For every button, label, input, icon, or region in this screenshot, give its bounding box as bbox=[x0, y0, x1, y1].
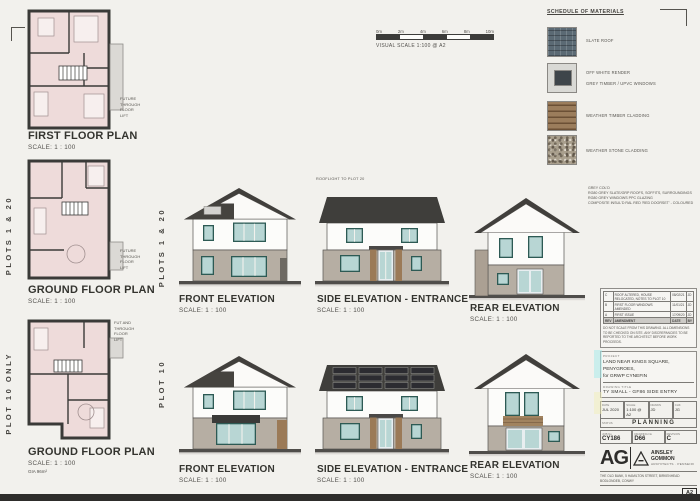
drawn-value: JD bbox=[651, 407, 671, 412]
meta-box: DATEJUL 2020 SCALE1:100 @ A2 DRAWNJD CHK… bbox=[600, 401, 697, 444]
elevation-title-side-row1: SIDE ELEVATION - ENTRANCE bbox=[317, 294, 468, 305]
material-label-slate: SLATE ROOF bbox=[586, 38, 696, 43]
plan-scale: SCALE: 1 : 100 bbox=[28, 460, 155, 467]
checked-value: JG bbox=[675, 407, 695, 412]
plan-note-lift: FUTURE THROUGH FLOOR LIFT bbox=[120, 96, 152, 118]
side-label-plot-10-plans: PLOT 10 ONLY bbox=[4, 352, 13, 435]
ainsley-gommon-logo-mark bbox=[633, 451, 649, 466]
status-label: STATUS bbox=[602, 421, 613, 425]
ainsley-gommon-logo: AG AINSLEY GOMMON ARCHITECTS · PENSEIRI bbox=[600, 447, 697, 469]
firm-address: THE OLD BANK, 5 HAMILTON STREET, BIRKENH… bbox=[600, 474, 697, 483]
side-label-plot-10-elevations: PLOT 10 bbox=[157, 360, 166, 408]
material-label-windows: GREY TIMBER / UPVC WINDOWS bbox=[586, 81, 696, 86]
elevation-title-front-row2: FRONT ELEVATION bbox=[179, 464, 275, 475]
elevation-scale: SCALE: 1 : 100 bbox=[470, 473, 560, 480]
side-label-plots-1-20-elevations: PLOTS 1 & 20 bbox=[157, 208, 166, 287]
plan-title-ground-floor-plot-10: GROUND FLOOR PLAN bbox=[28, 446, 155, 458]
scale-bar bbox=[376, 34, 494, 40]
elevation-scale: SCALE: 1 : 100 bbox=[317, 307, 468, 314]
status-value: PLANNING bbox=[613, 420, 695, 426]
rooflight-annotation: ROOFLIGHT TO PLOT 20 bbox=[316, 177, 364, 181]
plan-note-lift: FUTURE THROUGH FLOOR LIFT bbox=[120, 248, 152, 270]
plan-title-first-floor: FIRST FLOOR PLAN bbox=[28, 130, 138, 142]
revision-letter: C bbox=[667, 436, 695, 442]
drawing-title: TY SMALL - GF86 SIDE ENTRY bbox=[603, 390, 694, 395]
project-label: PROJECT bbox=[603, 354, 694, 358]
render-window-swatch bbox=[547, 63, 577, 93]
material-label-stone: WEATHER STONE CLADDING bbox=[586, 148, 696, 153]
firm-subtitle: ARCHITECTS · PENSEIRI bbox=[651, 462, 694, 466]
plan-scale: SCALE: 1 : 100 bbox=[28, 144, 138, 151]
elevation-title-side-row2: SIDE ELEVATION - ENTRANCE bbox=[317, 464, 468, 475]
drawing-title-label: DRAWING TITLE bbox=[603, 385, 694, 389]
plan-title-ground-floor-plots-1-20: GROUND FLOOR PLAN bbox=[28, 284, 155, 296]
elevation-scale: SCALE: 1 : 100 bbox=[317, 477, 468, 484]
title-block: CROOF ALTERED, HOUSE RELOCATED, NOTES TO… bbox=[600, 288, 697, 498]
side-elevation-entrance-plot-10-drawing bbox=[313, 352, 451, 458]
rear-elevation-plots-1-20-drawing bbox=[468, 192, 586, 304]
project-name: LAND NEAR KINGS SQUARE, PENYGROES, for G… bbox=[603, 359, 694, 381]
side-elevation-entrance-plots-1-20-drawing bbox=[313, 184, 451, 290]
ag-logo-text: AG bbox=[600, 448, 628, 468]
plan-area-note: GIA 96m² bbox=[28, 469, 155, 474]
plan-scale: SCALE: 1 : 100 bbox=[28, 298, 155, 305]
elevation-scale: SCALE: 1 : 100 bbox=[470, 316, 560, 323]
sheet-bottom-edge bbox=[0, 494, 700, 501]
elevation-title-rear-row2: REAR ELEVATION bbox=[470, 460, 560, 471]
firm-name: AINSLEY GOMMON bbox=[651, 450, 694, 462]
elevation-title-rear-row1: REAR ELEVATION bbox=[470, 303, 560, 314]
elevation-scale: SCALE: 1 : 100 bbox=[179, 307, 275, 314]
side-label-plots-1-20-plans: PLOTS 1 & 20 bbox=[4, 196, 13, 275]
corner-mark-top-right bbox=[660, 9, 687, 26]
disclaimer-note: DO NOT SCALE FROM THIS DRAWING. ALL DIME… bbox=[603, 326, 694, 345]
plan-note-lift: FUT AND THROUGH FLOOR LIFT bbox=[114, 320, 146, 342]
stone-cladding-swatch bbox=[547, 135, 577, 165]
logo-divider bbox=[630, 447, 631, 469]
timber-cladding-swatch bbox=[547, 101, 577, 131]
scale-value: 1:100 @ A2 bbox=[626, 407, 646, 417]
materials-title: SCHEDULE OF MATERIALS bbox=[547, 9, 624, 15]
slate-roof-swatch bbox=[547, 27, 577, 57]
project-box: PROJECT LAND NEAR KINGS SQUARE, PENYGROE… bbox=[600, 351, 697, 399]
visual-scale-bar: 0m2m 4m6m 8m10m VISUAL SCALE 1:100 @ A2 bbox=[376, 29, 494, 49]
front-elevation-plot-10-drawing bbox=[176, 354, 304, 458]
corner-mark-top-left bbox=[11, 27, 25, 41]
material-label-timber: WEATHER TIMBER CLADDING bbox=[586, 113, 696, 118]
job-number: CY186 bbox=[602, 436, 630, 442]
front-elevation-plots-1-20-drawing bbox=[176, 186, 304, 290]
finishes-notes: GREY COL'D RG80 GREY SLATE/GRP ROOFS, SO… bbox=[588, 186, 698, 206]
date-value: JUL 2020 bbox=[602, 407, 622, 412]
revision-table-box: CROOF ALTERED, HOUSE RELOCATED, NOTES TO… bbox=[600, 288, 697, 348]
revision-table: CROOF ALTERED, HOUSE RELOCATED, NOTES TO… bbox=[603, 291, 694, 324]
material-label-render: OFF WHITE RENDER bbox=[586, 70, 696, 75]
elevation-scale: SCALE: 1 : 100 bbox=[179, 477, 275, 484]
scale-bar-caption: VISUAL SCALE 1:100 @ A2 bbox=[376, 43, 494, 49]
rear-elevation-plot-10-drawing bbox=[468, 348, 586, 460]
drawing-number: D66 bbox=[634, 436, 662, 442]
architectural-drawing-sheet: FUTURE THROUGH FLOOR LIFT FIRST FLOOR PL… bbox=[0, 0, 700, 501]
elevation-title-front-row1: FRONT ELEVATION bbox=[179, 294, 275, 305]
